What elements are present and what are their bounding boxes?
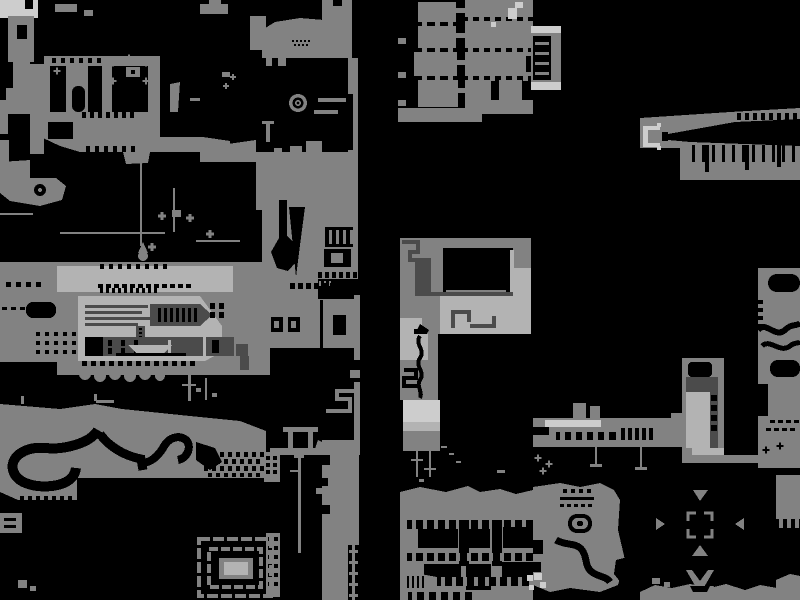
map-shape <box>531 26 561 33</box>
map-shape <box>85 337 103 356</box>
map-shape <box>283 427 318 432</box>
map-shape <box>294 455 304 458</box>
compass-arrow-left <box>735 518 744 530</box>
map-shape <box>222 72 230 77</box>
map-shape <box>414 52 457 76</box>
map-shape <box>686 377 718 392</box>
map-shape <box>26 302 56 318</box>
map-shape <box>251 330 261 332</box>
map-shape <box>534 573 542 580</box>
map-shape <box>690 586 710 592</box>
map-shape <box>240 356 249 370</box>
map-shape <box>96 400 114 403</box>
map-shape <box>94 394 97 401</box>
map-shape <box>758 384 768 416</box>
map-shape <box>79 368 91 380</box>
map-shape <box>531 82 561 90</box>
map-shape <box>298 457 301 553</box>
map-shape <box>640 447 642 467</box>
map-shape <box>422 75 453 81</box>
map-shape <box>38 188 42 192</box>
map-shape <box>230 74 236 80</box>
map-shape <box>224 562 248 575</box>
map-shape <box>290 470 298 472</box>
map-shape <box>403 422 440 431</box>
map-shape <box>85 311 142 314</box>
map-shape <box>635 467 647 470</box>
map-shape <box>94 370 106 382</box>
map-shape <box>291 321 296 328</box>
game-screen <box>0 0 800 600</box>
map-shape <box>314 110 338 114</box>
map-shape <box>109 368 121 380</box>
map-shape <box>262 121 274 124</box>
map-shape <box>188 375 191 401</box>
map-shape <box>418 80 458 107</box>
map-shape <box>540 468 547 475</box>
map-shape <box>662 132 668 141</box>
map-shape <box>290 146 302 152</box>
map-shape <box>0 262 57 292</box>
map-shape <box>85 305 148 308</box>
map-shape <box>102 56 112 118</box>
map-shape <box>322 0 352 58</box>
map-shape <box>236 344 248 356</box>
map-shape <box>206 230 214 238</box>
map-shape <box>508 8 517 19</box>
map-shape <box>535 455 542 462</box>
map-shape <box>182 384 196 386</box>
map-shape <box>262 18 324 58</box>
map-shape <box>398 100 406 106</box>
map-shape <box>190 98 200 101</box>
map-shape <box>0 513 22 533</box>
map-shape <box>424 468 436 470</box>
map-shape <box>431 292 513 296</box>
map-shape <box>318 98 346 102</box>
bracket-br <box>704 529 712 537</box>
map-shape <box>497 470 505 473</box>
map-shape <box>209 0 221 6</box>
compass-arrow-up <box>692 545 708 556</box>
map-shape <box>545 420 601 427</box>
map-shape <box>85 323 138 326</box>
map-shape <box>2 307 25 310</box>
map-shape <box>72 86 85 112</box>
map-shape <box>13 60 30 90</box>
map-shape <box>652 578 660 584</box>
map-shape <box>54 68 61 75</box>
map-shape <box>595 447 597 464</box>
map-shape <box>671 413 683 423</box>
map-shape <box>196 388 201 392</box>
map-shape <box>350 370 360 378</box>
map-shape <box>266 58 272 66</box>
map-shape <box>331 253 343 263</box>
map-shape <box>411 459 423 461</box>
map-shape <box>469 529 490 548</box>
map-shape <box>546 461 553 468</box>
map-shape <box>316 488 324 494</box>
map-shape <box>449 453 454 455</box>
map-shape <box>403 400 440 422</box>
map-shape <box>777 145 781 167</box>
map-shape <box>418 26 456 48</box>
map-shape <box>354 295 360 360</box>
map-shape <box>297 102 300 105</box>
map-shape <box>456 8 465 13</box>
map-shape <box>116 353 186 356</box>
map-shape <box>124 370 136 382</box>
map-shape <box>657 123 661 127</box>
map-shape <box>429 451 431 477</box>
map-shape <box>446 290 506 292</box>
map-shape <box>768 274 800 292</box>
map-shape <box>48 122 73 139</box>
map-shape <box>251 354 261 356</box>
map-shape <box>456 33 465 38</box>
map-shape <box>196 240 240 242</box>
map-shape <box>418 2 456 22</box>
map-shape <box>255 332 257 354</box>
map-shape <box>55 4 77 12</box>
map-shape <box>4 525 16 528</box>
map-shape <box>515 2 523 8</box>
map-shape <box>0 100 8 134</box>
map-shape <box>688 362 712 377</box>
wire <box>60 232 165 234</box>
map-shape <box>223 83 229 89</box>
map-shape <box>333 0 342 6</box>
map-shape <box>705 145 709 172</box>
map-shape <box>398 38 406 44</box>
map-shape <box>274 148 282 152</box>
map-shape <box>158 212 166 220</box>
map-shape <box>590 464 602 467</box>
map-shape <box>148 243 156 251</box>
map-shape <box>403 431 440 451</box>
map-shape <box>491 22 496 27</box>
map-shape <box>172 210 181 217</box>
map-shape <box>416 451 418 477</box>
map-shape <box>322 455 330 465</box>
map-shape <box>131 70 135 74</box>
map-shape <box>776 475 800 519</box>
game-map[interactable] <box>0 0 800 600</box>
map-shape <box>418 336 421 398</box>
map-shape <box>400 334 428 360</box>
map-shape <box>398 108 482 122</box>
bracket-tr <box>704 513 712 521</box>
droplet <box>138 251 148 261</box>
map-shape <box>422 47 453 53</box>
map-shape <box>770 360 800 377</box>
map-shape <box>779 519 799 528</box>
map-shape <box>540 582 546 588</box>
map-shape <box>529 585 534 590</box>
map-shape <box>465 21 533 48</box>
bracket-tl <box>688 513 696 521</box>
map-shape <box>745 145 749 170</box>
map-shape <box>148 56 160 118</box>
map-shape <box>139 368 151 380</box>
map-shape <box>398 72 406 78</box>
map-shape <box>503 527 533 548</box>
map-shape <box>30 112 44 154</box>
map-shape <box>527 575 533 581</box>
map-shape <box>322 478 328 486</box>
map-shape <box>766 138 790 140</box>
map-shape <box>18 580 27 588</box>
map-shape <box>510 250 514 294</box>
map-shape <box>170 82 180 112</box>
map-shape <box>577 521 583 526</box>
map-shape <box>456 88 465 93</box>
map-shape <box>322 505 330 514</box>
map-shape <box>266 124 270 142</box>
meander-glyph <box>326 391 355 411</box>
map-shape <box>533 562 541 572</box>
map-shape <box>274 321 279 328</box>
map-shape <box>560 497 594 500</box>
map-shape <box>456 461 461 463</box>
map-shape <box>333 315 346 335</box>
compass-arrow-down <box>693 490 708 501</box>
map-shape <box>21 396 24 404</box>
map-shape <box>441 577 533 586</box>
map-shape <box>456 60 465 65</box>
map-shape <box>85 317 150 320</box>
map-shape <box>6 88 31 114</box>
map-shape <box>763 126 765 132</box>
map-shape <box>657 146 661 150</box>
map-shape <box>441 446 447 448</box>
map-shape <box>415 258 431 296</box>
map-shape <box>465 52 533 76</box>
map-shape <box>482 100 533 114</box>
map-shape <box>186 214 194 222</box>
map-shape <box>30 586 36 591</box>
map-shape <box>17 25 27 39</box>
bracket-bl <box>688 529 696 537</box>
map-shape <box>533 427 549 435</box>
map-shape <box>419 479 424 482</box>
map-shape <box>0 213 33 215</box>
map-shape <box>123 152 150 164</box>
compass-arrow-right <box>656 518 665 530</box>
map-shape <box>212 340 219 353</box>
map-shape <box>422 21 453 27</box>
map-shape <box>155 371 165 381</box>
map-shape <box>533 540 543 554</box>
map-shape <box>212 393 217 397</box>
map-shape <box>0 160 66 206</box>
map-shape <box>206 337 234 356</box>
map-shape <box>686 392 710 448</box>
map-shape <box>278 56 286 66</box>
black-chamber <box>443 248 513 294</box>
map-shape <box>25 0 33 9</box>
map-shape <box>4 518 16 521</box>
map-shape <box>84 10 93 16</box>
map-shape <box>418 529 458 548</box>
map-shape <box>205 378 207 400</box>
map-shape <box>664 582 670 587</box>
map-shape <box>590 406 600 418</box>
map-shape <box>306 141 322 152</box>
map-shape <box>573 403 586 418</box>
